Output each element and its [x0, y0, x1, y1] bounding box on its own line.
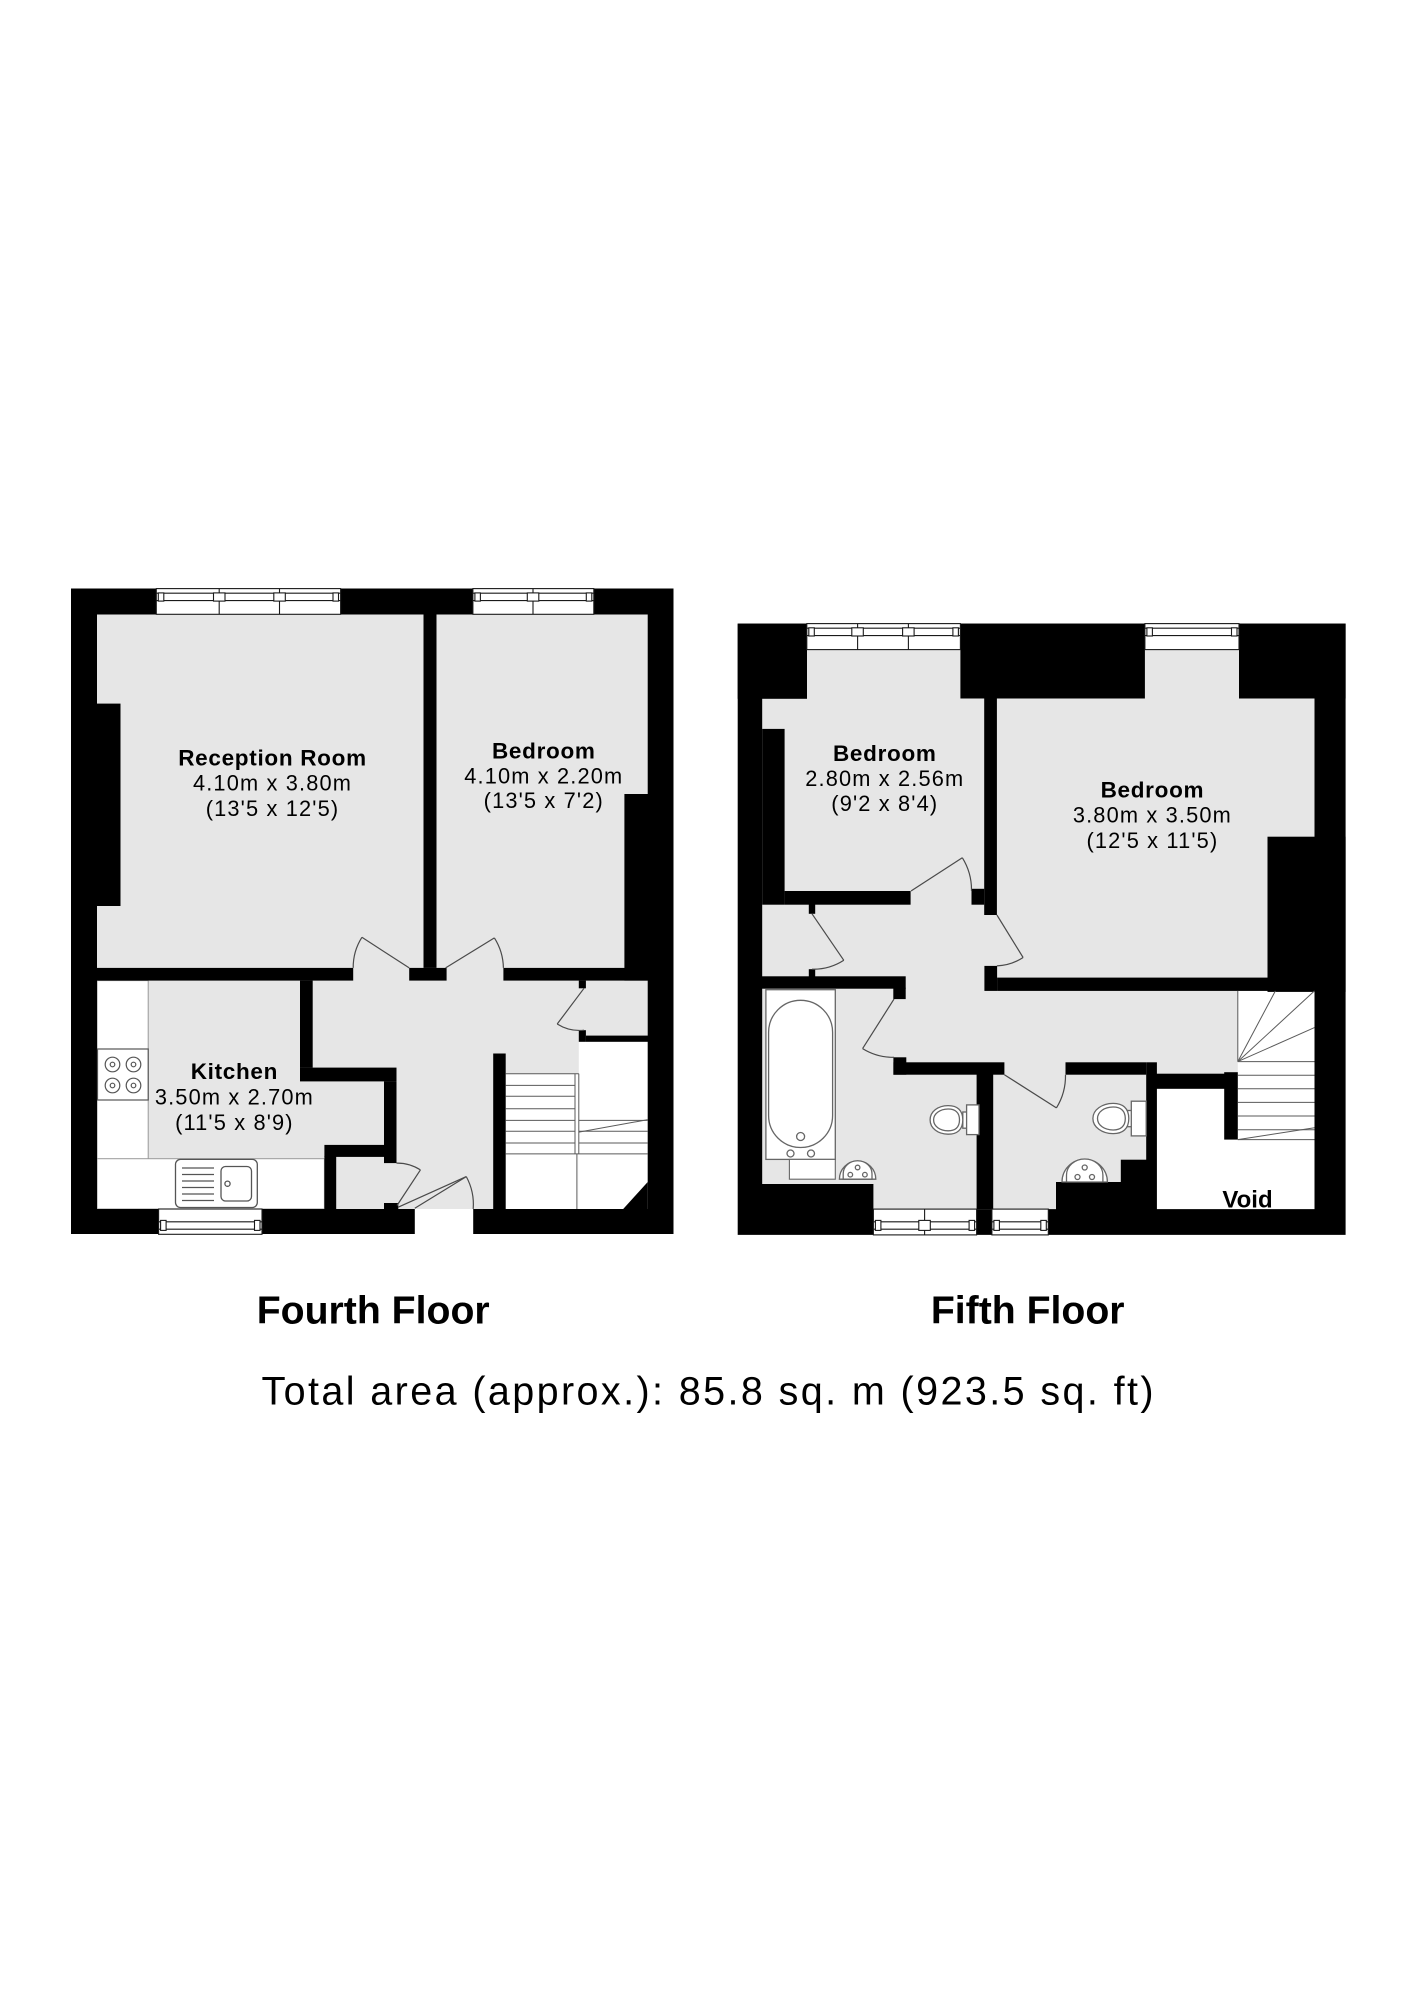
svg-text:Kitchen: Kitchen	[191, 1059, 278, 1084]
svg-text:(12'5 x 11'5): (12'5 x 11'5)	[1086, 828, 1218, 853]
svg-text:2.80m x 2.56m: 2.80m x 2.56m	[805, 766, 964, 791]
svg-text:Reception Room: Reception Room	[178, 746, 367, 771]
svg-text:Bedroom: Bedroom	[833, 741, 937, 766]
svg-text:Bedroom: Bedroom	[492, 739, 596, 764]
svg-text:(13'5 x 7'2): (13'5 x 7'2)	[484, 788, 604, 813]
svg-text:4.10m x 3.80m: 4.10m x 3.80m	[193, 771, 352, 796]
svg-text:Fifth Floor: Fifth Floor	[931, 1289, 1125, 1332]
svg-text:(9'2 x 8'4): (9'2 x 8'4)	[831, 791, 938, 816]
svg-text:4.10m x 2.20m: 4.10m x 2.20m	[464, 763, 623, 788]
svg-text:Bedroom: Bedroom	[1101, 777, 1205, 802]
svg-text:3.80m x 3.50m: 3.80m x 3.50m	[1073, 803, 1232, 828]
svg-text:(11'5 x 8'9): (11'5 x 8'9)	[175, 1110, 294, 1135]
svg-text:Void: Void	[1222, 1187, 1272, 1214]
svg-text:Fourth Floor: Fourth Floor	[257, 1289, 490, 1332]
svg-text:3.50m x 2.70m: 3.50m x 2.70m	[155, 1085, 314, 1110]
svg-text:(13'5 x 12'5): (13'5 x 12'5)	[206, 796, 340, 821]
svg-text:Total area (approx.): 85.8 sq.: Total area (approx.): 85.8 sq. m (923.5 …	[262, 1370, 1156, 1414]
